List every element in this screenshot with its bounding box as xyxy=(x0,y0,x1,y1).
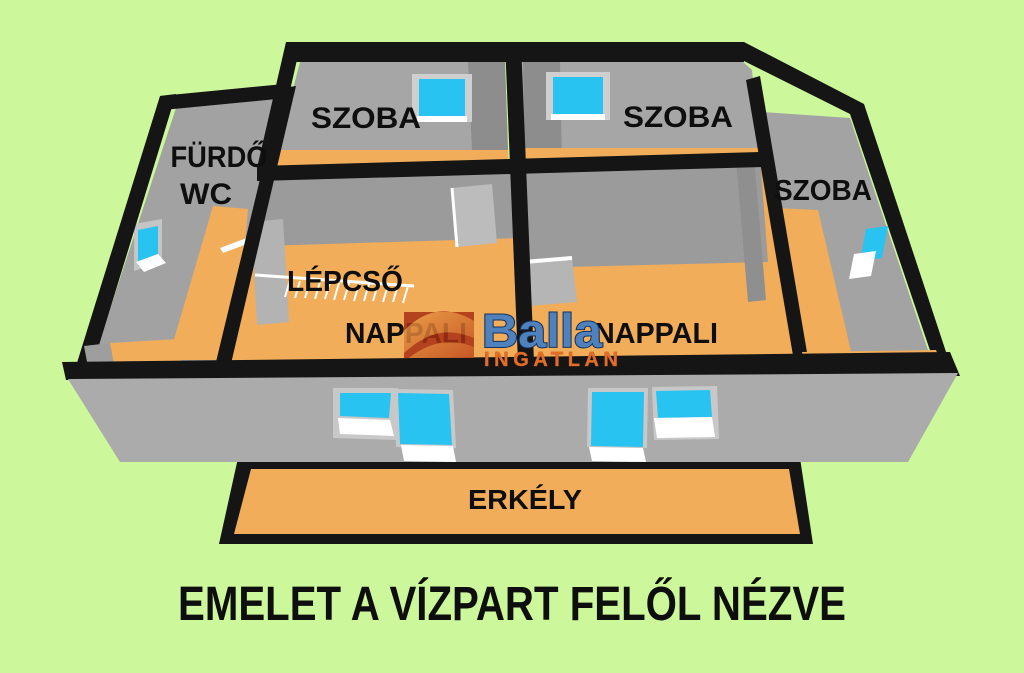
page-title: EMELET A VÍZPART FELŐL NÉZVE xyxy=(178,577,846,631)
door-panel-left xyxy=(452,184,497,247)
label-szoba-top-left: SZOBA xyxy=(311,102,421,135)
front-window-3-sill xyxy=(589,447,646,462)
label-szoba-top-right: SZOBA xyxy=(623,101,733,134)
front-window-2-glass xyxy=(398,393,452,445)
label-szoba-right-wing: SZOBA xyxy=(774,175,872,207)
logo-subtitle-text: INGATLAN xyxy=(484,349,618,371)
door-panel-center xyxy=(524,258,577,306)
nappali-right-back-wall xyxy=(521,156,768,268)
front-window-2-sill xyxy=(401,445,456,462)
furdo-bottom-floor-strip xyxy=(110,339,181,364)
label-erkely: ERKÉLY xyxy=(468,484,582,515)
floorplan-page: SZOBA SZOBA SZOBA FÜRDŐ WC LÉPCSŐ NAPPAL… xyxy=(0,0,1024,673)
szoba1-side-wall xyxy=(468,62,508,150)
front-window-4-glass xyxy=(656,390,712,418)
front-window-1-glass xyxy=(340,393,391,418)
front-wall xyxy=(62,352,960,462)
szoba2-window-glass xyxy=(553,77,603,114)
label-wc: WC xyxy=(180,178,232,211)
logo-watermark xyxy=(404,311,474,358)
floorplan-canvas: SZOBA SZOBA SZOBA FÜRDŐ WC LÉPCSŐ NAPPAL… xyxy=(0,0,1024,673)
label-lepcso: LÉPCSŐ xyxy=(287,264,403,298)
front-wall-face xyxy=(68,373,958,462)
front-window-1-sill xyxy=(338,418,394,436)
szoba1-window-glass xyxy=(419,79,465,116)
front-window-3-glass xyxy=(591,392,644,447)
label-nappali-right: NAPPALI xyxy=(594,318,718,350)
szoba1-window-sill xyxy=(417,116,467,122)
front-window-4-sill xyxy=(654,417,715,438)
szoba2-window-sill xyxy=(551,114,605,120)
label-furdo: FÜRDŐ xyxy=(171,140,268,174)
